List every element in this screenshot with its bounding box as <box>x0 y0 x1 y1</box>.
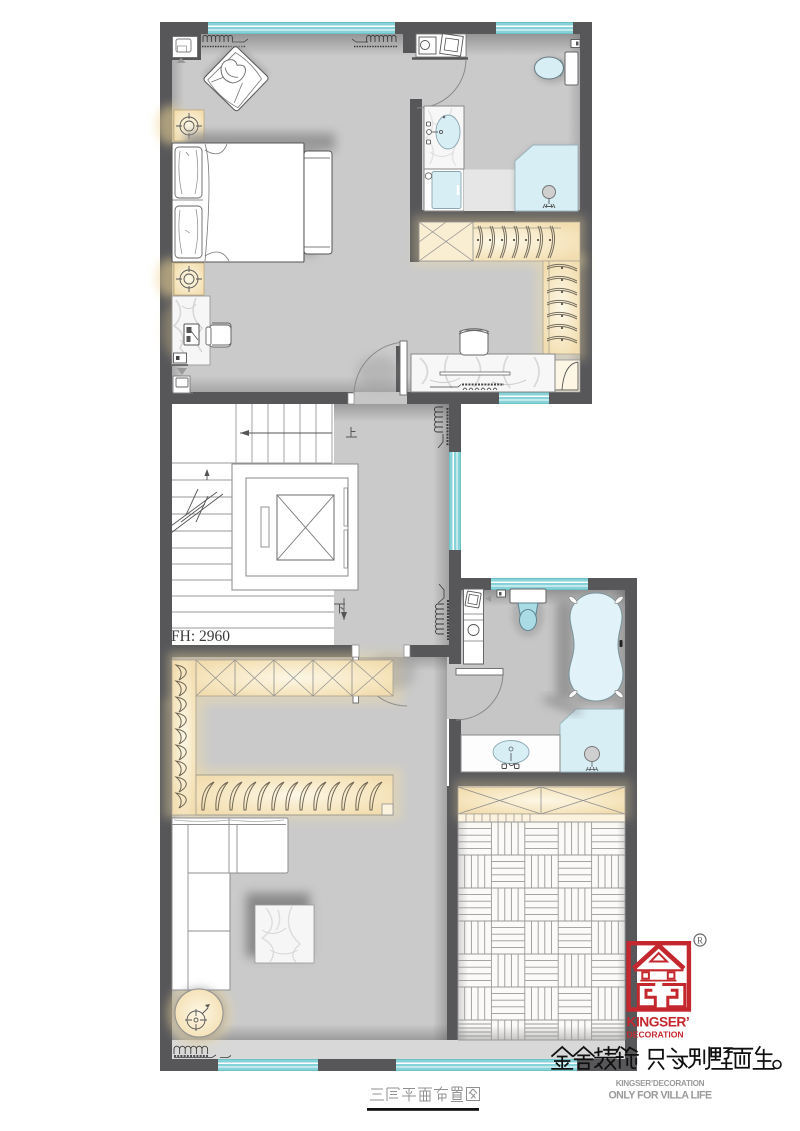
svg-text:R: R <box>697 936 703 946</box>
svg-text:KINGSER’: KINGSER’ <box>627 1015 690 1030</box>
svg-text:KINGSER’DECORATION: KINGSER’DECORATION <box>616 1079 705 1088</box>
svg-text:ONLY FOR VILLA LIFE: ONLY FOR VILLA LIFE <box>608 1090 712 1102</box>
svg-text:DECORATION: DECORATION <box>627 1030 684 1040</box>
